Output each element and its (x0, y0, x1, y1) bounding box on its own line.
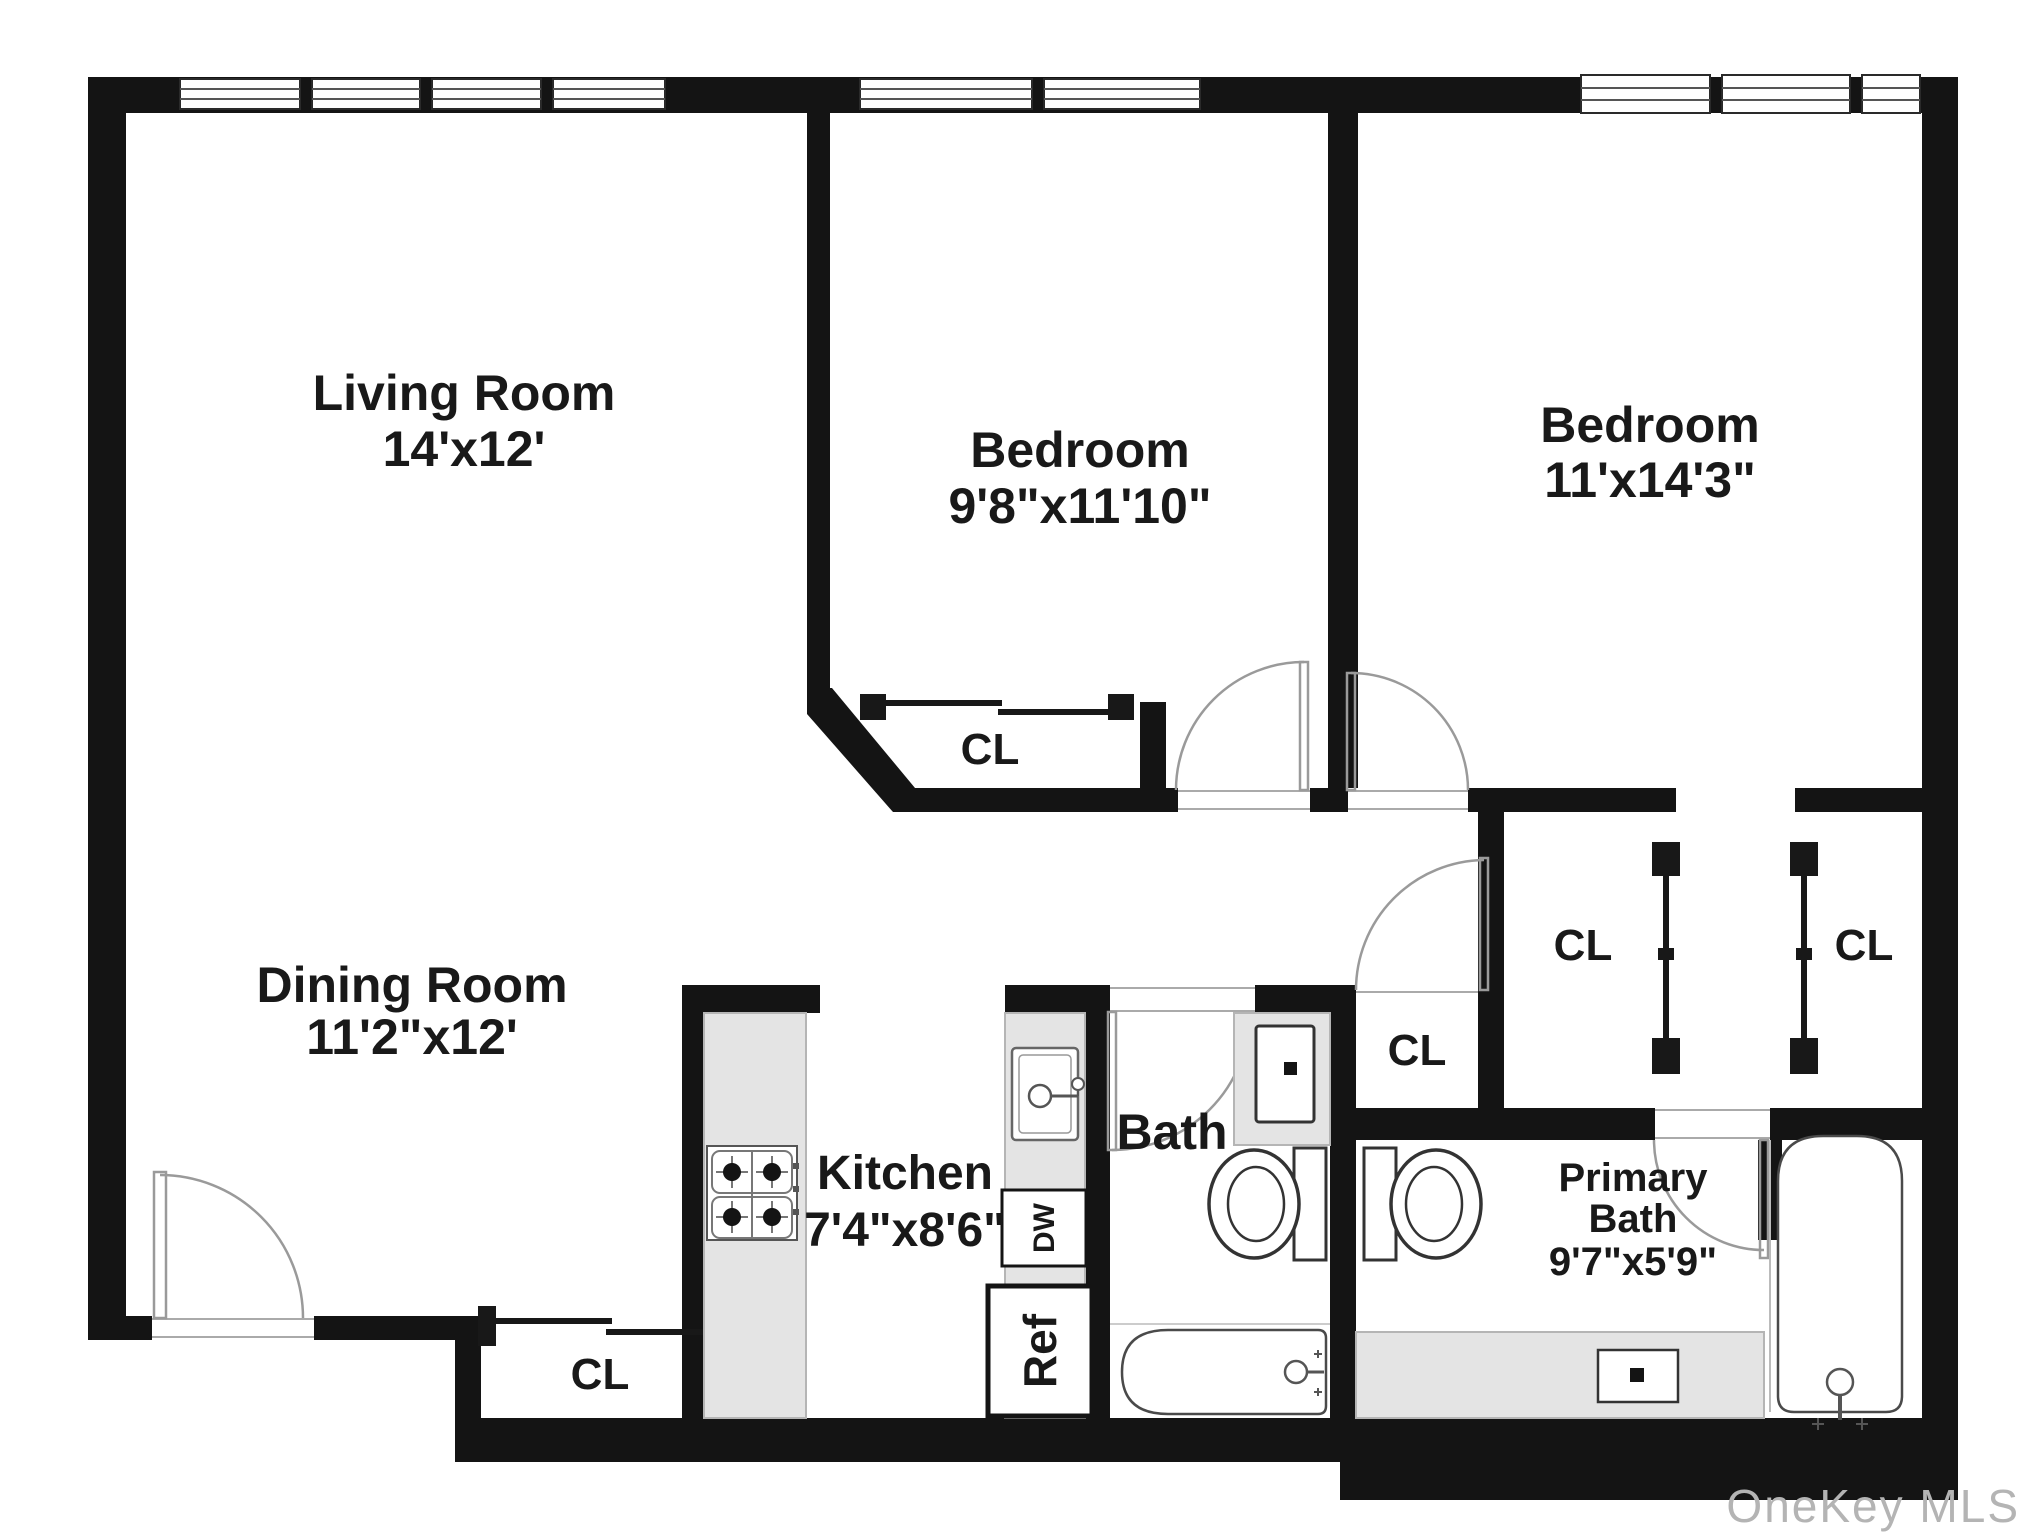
wall-bath-divider (1330, 988, 1356, 1418)
closet-label-bedroom1: CL (961, 725, 1020, 774)
wall-bedroom1-west (807, 113, 830, 707)
dishwasher: DW (1002, 1190, 1086, 1266)
kitchen-dims: 7'4"x8'6" (804, 1204, 1006, 1257)
entry-door (152, 1172, 314, 1337)
closet-label-hall: CL (1388, 1026, 1447, 1075)
living-room-label: Living Room (313, 365, 616, 421)
bed1-closet-jamb-right (1108, 694, 1134, 720)
refrigerator: Ref (988, 1286, 1092, 1416)
interior-walls (478, 113, 1922, 1418)
wall-hall-north-a (893, 788, 1178, 812)
bath-fixtures (1110, 1013, 1330, 1414)
primary-bath-label-2: Bath (1589, 1197, 1678, 1241)
bedroom1-label: Bedroom (970, 422, 1189, 478)
closet-label-primary-right: CL (1835, 921, 1894, 970)
closet-label-entry: CL (571, 1350, 630, 1399)
windows (180, 75, 1920, 113)
closet-label-primary-left: CL (1554, 921, 1613, 970)
entry-closet-door-a (494, 1318, 612, 1324)
wall-kitchen-west (682, 985, 704, 1418)
bedroom2-dims: 11'x14'3" (1544, 452, 1756, 508)
bath-toilet (1209, 1148, 1326, 1260)
wall-hall-east (1478, 788, 1504, 1140)
entry-closet-jamb-left (478, 1306, 496, 1346)
dining-room-label: Dining Room (256, 957, 567, 1013)
wall-bed1-closet-east (1140, 702, 1166, 792)
wall-left (88, 77, 126, 1340)
bath-tub (1122, 1330, 1326, 1414)
primary-vanity-sink (1598, 1350, 1678, 1402)
wall-primary-north-a (1324, 1108, 1655, 1140)
cl-left-jamb-bottom (1652, 1038, 1680, 1074)
floor-plan: DW Ref (0, 0, 2029, 1536)
hall-closet-door (1356, 858, 1488, 992)
wall-between-bedrooms (1328, 113, 1358, 788)
bath-medicine-cabinet (1256, 1026, 1314, 1122)
primary-bath-label-1: Primary (1559, 1156, 1709, 1200)
wall-hall-north-d (1795, 788, 1922, 812)
bedroom1-door (1176, 662, 1310, 809)
bedroom2-label: Bedroom (1540, 397, 1759, 453)
dining-room-dims: 11'2"x12' (306, 1009, 518, 1065)
refrigerator-label: Ref (1014, 1313, 1066, 1388)
window-bedroom-1 (860, 79, 1200, 109)
watermark: OneKey MLS (1726, 1480, 2020, 1532)
wall-dining-south-a (88, 1316, 152, 1340)
cl-left-door-tick (1658, 948, 1674, 960)
dishwasher-label: DW (1028, 1202, 1061, 1253)
bedroom2-door (1347, 673, 1468, 809)
primary-tub (1778, 1136, 1902, 1430)
cl-right-jamb-bottom (1790, 1038, 1818, 1074)
primary-toilet (1364, 1148, 1481, 1260)
wall-bottom-left (455, 1418, 1340, 1462)
primary-bath-dims: 9'7"x5'9" (1549, 1240, 1717, 1284)
living-room-dims: 14'x12' (383, 421, 546, 477)
wall-dining-south-b (314, 1316, 455, 1340)
wall-step-down (455, 1316, 481, 1430)
floor-plan-svg: DW Ref (0, 0, 2029, 1536)
kitchen-sink (1012, 1048, 1084, 1140)
kitchen-label: Kitchen (817, 1147, 993, 1200)
cl-right-door-tick (1796, 948, 1812, 960)
bedroom1-dims: 9'8"x11'10" (948, 478, 1211, 534)
bath-label: Bath (1116, 1104, 1227, 1160)
bed1-closet-door-a (872, 700, 1002, 706)
bed1-closet-door-b (998, 709, 1128, 715)
primary-vanity-counter (1356, 1332, 1764, 1418)
bed1-closet-jamb-left (860, 694, 886, 720)
wall-right (1922, 77, 1958, 1500)
window-bedroom-2 (1581, 75, 1920, 113)
wall-hall-north-b (1310, 788, 1348, 812)
stove (707, 1146, 799, 1240)
